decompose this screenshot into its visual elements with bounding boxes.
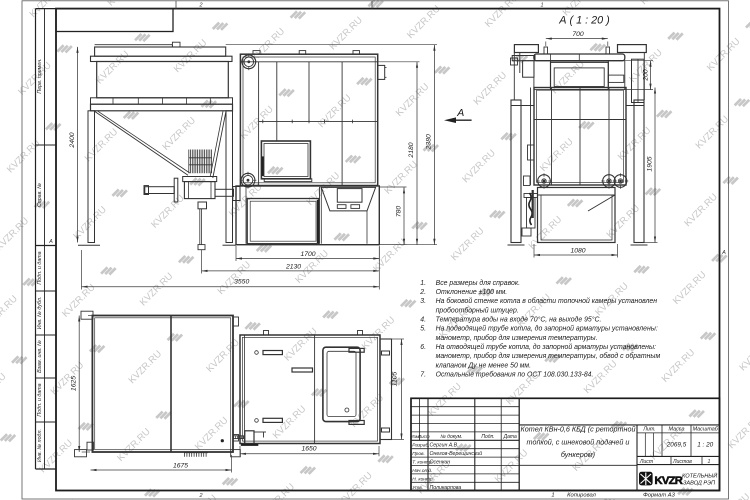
svg-text:3550: 3550 (234, 278, 249, 285)
svg-text:ЗАВОД РЭП: ЗАВОД РЭП (683, 481, 716, 487)
svg-text:7.: 7. (420, 371, 426, 378)
svg-text:Пров.: Пров. (412, 451, 425, 457)
svg-text:1625: 1625 (70, 376, 77, 391)
svg-text:клапаном Ду не менее 50 мм.: клапаном Ду не менее 50 мм. (436, 362, 532, 369)
svg-text:топкой, с шнековой подачей и: топкой, с шнековой подачей и (527, 438, 630, 447)
svg-text:Нач.отд.: Нач.отд. (412, 468, 432, 474)
svg-text:Инв. № дубл.: Инв. № дубл. (37, 297, 43, 330)
svg-text:2400: 2400 (69, 132, 76, 148)
svg-text:5.: 5. (420, 326, 426, 333)
svg-text:На боковой стенке котла в обла: На боковой стенке котла в области топочн… (436, 297, 658, 305)
svg-text:Масштаб: Масштаб (693, 427, 719, 433)
svg-text:700: 700 (572, 31, 584, 38)
svg-text:2: 2 (198, 493, 202, 499)
svg-text:1675: 1675 (173, 462, 188, 469)
svg-text:Подп.: Подп. (481, 434, 494, 440)
svg-text:Н. контр.: Н. контр. (412, 476, 434, 482)
svg-text:Остальные требования по ОСТ 10: Остальные требования по ОСТ 108.030.133-… (436, 370, 594, 378)
svg-text:Отклонение ±100 мм.: Отклонение ±100 мм. (436, 289, 508, 296)
svg-text:Инв. № подл.: Инв. № подл. (37, 429, 43, 462)
svg-text:2130: 2130 (285, 264, 301, 271)
svg-text:Копировал: Копировал (567, 492, 597, 498)
svg-text:Подп. и дата: Подп. и дата (37, 251, 43, 284)
svg-text:3.: 3. (420, 298, 426, 305)
svg-text:1650: 1650 (301, 446, 316, 453)
svg-text:2: 2 (198, 3, 202, 9)
svg-text:1700: 1700 (300, 251, 315, 258)
svg-text:1: 1 (551, 492, 554, 498)
svg-text:1 : 20: 1 : 20 (697, 442, 713, 449)
svg-text:На подводящей трубе котла, до: На подводящей трубе котла, до запорной а… (436, 325, 658, 333)
svg-text:Перв. примен.: Перв. примен. (37, 58, 43, 93)
svg-text:пробоотборный штуцер.: пробоотборный штуцер. (436, 306, 519, 314)
svg-text:Взам. инв. №: Взам. инв. № (37, 340, 43, 373)
svg-text:KVZR: KVZR (655, 475, 683, 487)
svg-text:200: 200 (643, 69, 650, 82)
svg-text:№ докум.: № докум. (440, 434, 462, 440)
svg-text:бункером): бункером) (561, 450, 595, 459)
svg-text:780: 780 (395, 206, 402, 218)
svg-text:2069,5: 2069,5 (666, 442, 687, 449)
svg-text:Поликарпова: Поликарпова (430, 485, 462, 491)
svg-text:Формат А3: Формат А3 (643, 492, 675, 498)
svg-text:6.: 6. (420, 344, 426, 351)
svg-text:1.: 1. (420, 280, 426, 287)
svg-text:На отводящей трубе котла, до з: На отводящей трубе котла, до запорной ар… (436, 343, 656, 351)
svg-text:А ( 1 : 20 ): А ( 1 : 20 ) (558, 15, 609, 27)
svg-text:Разраб.: Разраб. (412, 443, 429, 449)
svg-text:Все размеры для справок.: Все размеры для справок. (436, 279, 521, 287)
svg-text:А: А (456, 107, 464, 119)
svg-text:Котел КВн-0,6 КБД (с ретортной: Котел КВн-0,6 КБД (с ретортной (521, 425, 636, 434)
svg-text:Осенкин: Осенкин (430, 460, 451, 466)
svg-text:Листов: Листов (672, 459, 692, 465)
svg-text:Утв.: Утв. (412, 485, 423, 491)
svg-text:Справ. №: Справ. № (37, 183, 43, 207)
svg-text:2.: 2. (419, 289, 426, 296)
svg-text:1105: 1105 (392, 371, 399, 386)
svg-text:2180: 2180 (408, 142, 415, 158)
svg-text:Лист: Лист (639, 459, 654, 465)
svg-text:А: А (48, 239, 53, 245)
svg-text:Онегов-Верещинский: Онегов-Верещинский (430, 450, 483, 457)
svg-text:1: 1 (708, 459, 711, 465)
svg-text:Температура воды на входе 70°С: Температура воды на входе 70°С, на выход… (436, 316, 602, 324)
svg-text:Подп. и дата: Подп. и дата (37, 383, 43, 416)
svg-text:1080: 1080 (570, 247, 585, 254)
svg-text:Лит.: Лит. (642, 427, 656, 433)
svg-text:А: А (721, 250, 726, 256)
svg-text:Масса: Масса (669, 427, 685, 433)
svg-text:КОТЕЛЬНЫЙ: КОТЕЛЬНЫЙ (682, 472, 717, 480)
svg-text:1905: 1905 (646, 156, 653, 171)
svg-text:манометр, прибор для измерения: манометр, прибор для измерения температу… (436, 352, 661, 360)
svg-text:2380: 2380 (426, 134, 433, 150)
svg-text:Дата: Дата (503, 434, 517, 440)
svg-text:4.: 4. (420, 317, 426, 324)
svg-text:Сергин А.В.: Сергин А.В. (430, 443, 459, 449)
svg-text:Лист: Лист (417, 434, 430, 439)
svg-text:манометр, прибор для измерения: манометр, прибор для измерения температу… (436, 334, 598, 342)
svg-text:1: 1 (540, 3, 543, 9)
